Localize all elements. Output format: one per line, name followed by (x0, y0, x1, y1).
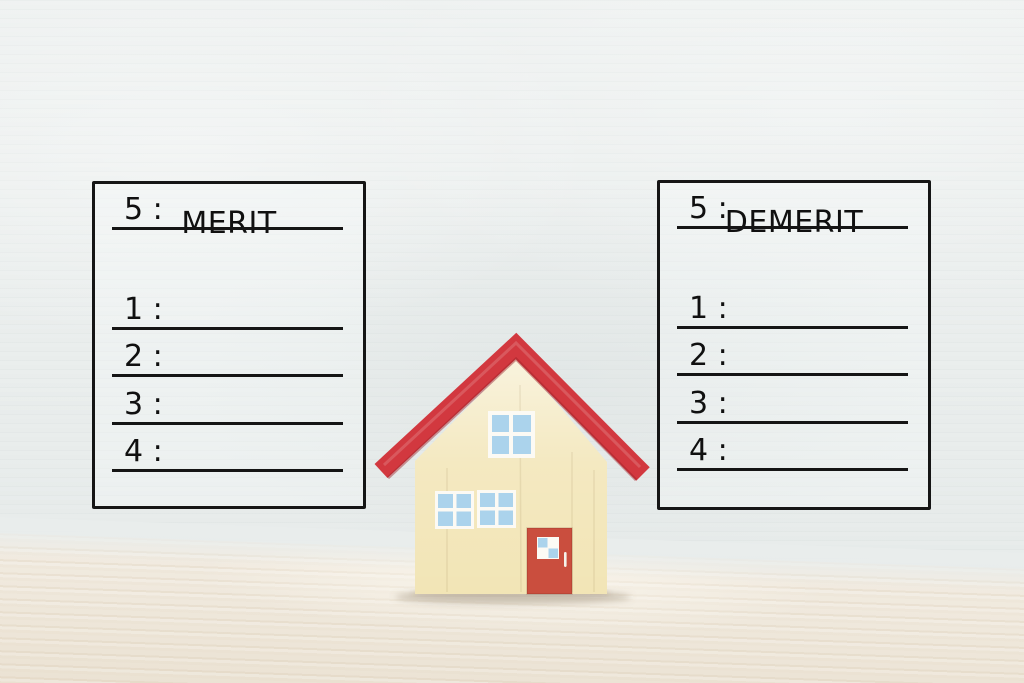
stock-photo-scene: MERIT 1 : 2 : 3 : 4 : 5 : DEMERIT 1 : 2 … (0, 0, 1024, 683)
lower-window-left (435, 491, 474, 529)
demerit-row-5: 5 : (677, 183, 908, 229)
door-handle (564, 552, 567, 567)
demerit-row-2-label: 2 : (689, 341, 728, 371)
merit-row-5: 5 : (112, 184, 343, 230)
merit-row-4: 4 : (112, 426, 343, 472)
demerit-row-3-label: 3 : (689, 389, 728, 419)
demerit-row-1-label: 1 : (689, 294, 728, 324)
merit-row-2-label: 2 : (124, 342, 163, 372)
demerit-row-3: 3 : (677, 378, 908, 424)
lower-window-right (477, 490, 516, 528)
house-gable-highlight (415, 357, 607, 594)
merit-row-5-label: 5 : (124, 195, 163, 225)
merit-row-1-label: 1 : (124, 295, 163, 325)
demerit-row-5-label: 5 : (689, 194, 728, 224)
demerit-row-4-label: 4 : (689, 436, 728, 466)
front-door (527, 528, 572, 594)
merit-row-1: 1 : (112, 284, 343, 330)
merit-list-card: MERIT 1 : 2 : 3 : 4 : 5 : (92, 181, 366, 509)
merit-row-3: 3 : (112, 379, 343, 425)
upper-window (488, 411, 535, 458)
merit-row-3-label: 3 : (124, 390, 163, 420)
door-window (537, 537, 559, 559)
demerit-list-card: DEMERIT 1 : 2 : 3 : 4 : 5 : (657, 180, 931, 510)
demerit-row-1: 1 : (677, 283, 908, 329)
demerit-row-2: 2 : (677, 330, 908, 376)
demerit-row-4: 4 : (677, 425, 908, 471)
merit-row-4-label: 4 : (124, 437, 163, 467)
merit-row-2: 2 : (112, 331, 343, 377)
